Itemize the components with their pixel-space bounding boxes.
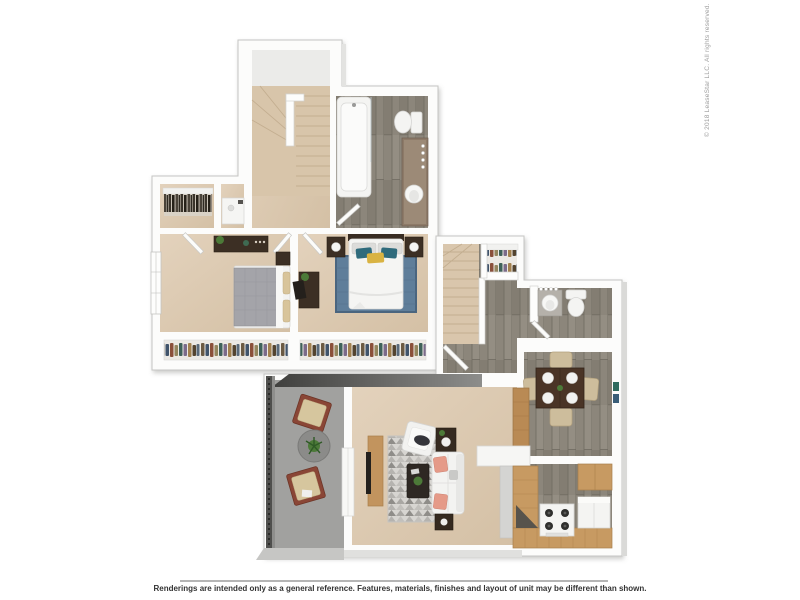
bedroom-2-nightstand-left xyxy=(327,237,345,257)
bathtub xyxy=(337,97,371,197)
bedroom-1 xyxy=(151,233,292,332)
upper-floor-unit xyxy=(151,40,444,370)
dining-table xyxy=(536,368,584,408)
entry-closet-clothes xyxy=(487,250,517,272)
entry-walkway xyxy=(344,550,522,557)
roof-edge-band xyxy=(272,374,482,387)
bedroom-2-nightstand-right xyxy=(405,237,423,257)
patio-table xyxy=(298,430,330,462)
wall-art-2 xyxy=(613,394,619,403)
footer-divider xyxy=(180,580,608,582)
closet-clothes-1 xyxy=(164,340,288,360)
coffee-table xyxy=(407,464,429,498)
patio-step xyxy=(256,548,344,560)
washer xyxy=(222,198,244,224)
sofa xyxy=(432,452,464,514)
hall-closet-upper xyxy=(160,184,244,228)
wall-art-1 xyxy=(613,382,619,391)
dining-chair-bottom xyxy=(550,408,572,426)
half-bath-vanity xyxy=(538,287,562,316)
entry-closet xyxy=(481,244,518,280)
lower-right-shadow xyxy=(622,282,627,556)
closet-clothes-2 xyxy=(300,340,426,360)
bedroom-1-nightstand xyxy=(276,252,290,265)
half-wall xyxy=(500,466,513,538)
stove xyxy=(540,504,574,537)
bedroom-2-bed xyxy=(349,239,403,309)
patio-sliding-door xyxy=(342,448,354,516)
tv-console xyxy=(366,436,383,506)
refrigerator xyxy=(578,497,610,528)
patio-screen xyxy=(266,376,272,548)
tv xyxy=(366,452,371,494)
tall-cabinet xyxy=(513,388,529,450)
footer-disclaimer: Renderings are intended only as a genera… xyxy=(0,584,800,593)
bedroom-1-window xyxy=(151,252,161,314)
floorplan-page: © 2018 LeaseStar LLC. All rights reserve… xyxy=(0,0,800,600)
floorplan-rendering xyxy=(0,0,800,600)
stair-hall-upper xyxy=(252,50,330,228)
upper-roof-edge xyxy=(342,44,346,86)
toilet-upper xyxy=(395,111,423,133)
breakfast-bar xyxy=(477,446,530,466)
bedroom-1-dresser xyxy=(214,236,268,252)
side-table-bottom xyxy=(435,514,453,530)
bedroom-2 xyxy=(293,233,428,332)
bathroom-vanity xyxy=(402,138,428,226)
copyright-watermark: © 2018 LeaseStar LLC. All rights reserve… xyxy=(704,3,711,137)
side-table-top xyxy=(436,428,456,452)
dining-chair-top xyxy=(550,352,572,368)
bedroom-1-bed xyxy=(234,266,290,328)
hanging-clothes-dark xyxy=(164,194,212,216)
staircase-lower xyxy=(443,244,485,344)
bathroom-upper xyxy=(336,96,428,228)
